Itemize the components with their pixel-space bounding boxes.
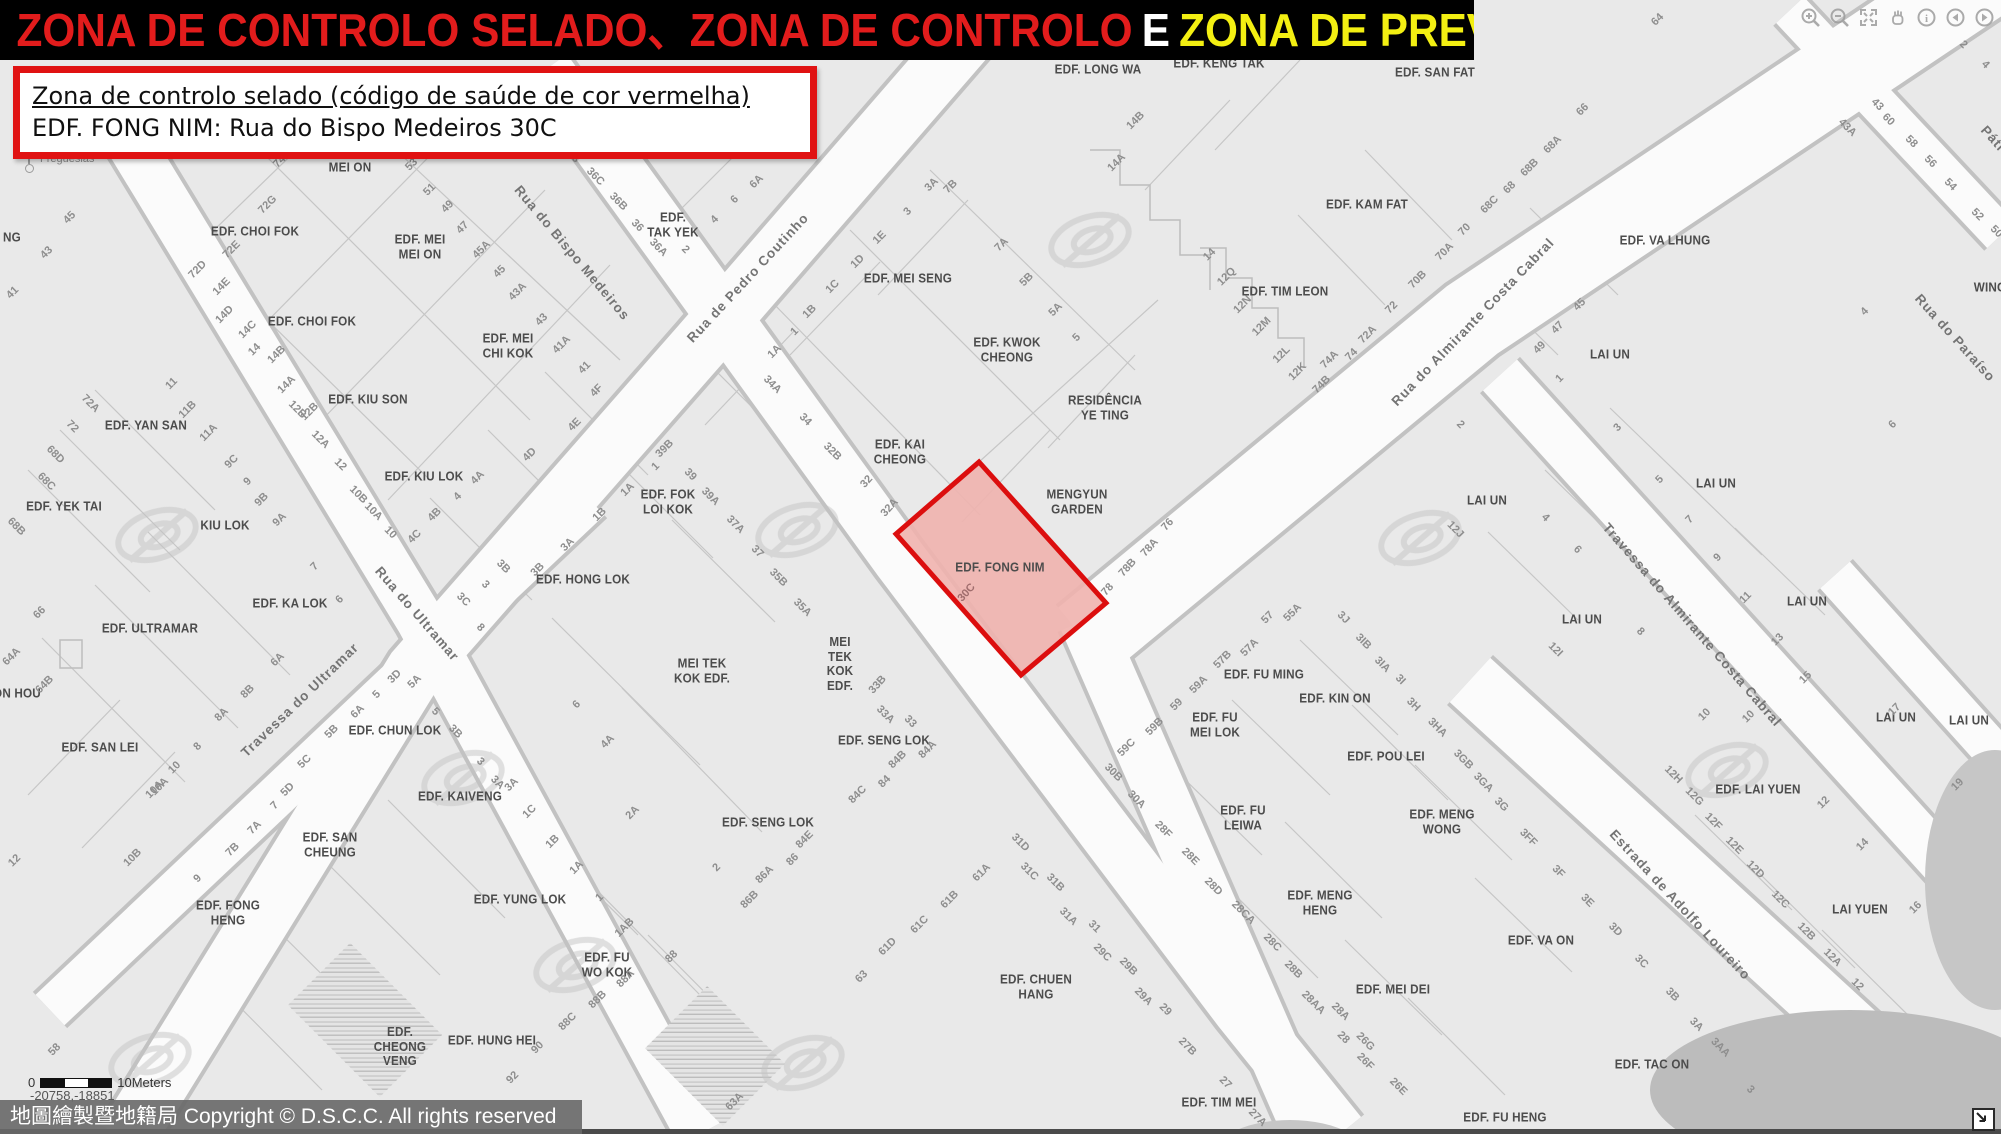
lot-number: 14 xyxy=(1202,247,1218,263)
street-label: Travessa do Almirante Costa Cabral xyxy=(1600,521,1784,730)
lot-number: 6 xyxy=(334,594,346,606)
lot-number: 52 xyxy=(1969,207,1985,223)
lot-number: 6 xyxy=(1887,419,1899,431)
lot-number: 28F xyxy=(1152,819,1173,840)
lot-number: 64A xyxy=(1,646,23,668)
lot-number: 78B xyxy=(1117,557,1139,579)
lot-number: 9 xyxy=(242,476,254,488)
lot-number: 1 xyxy=(789,326,801,338)
lot-number: 36C xyxy=(584,166,606,188)
lot-number: 35B xyxy=(767,567,789,589)
building-label: EDF. YEK TAI xyxy=(26,500,102,515)
lot-number: 74B xyxy=(1311,374,1333,396)
lot-number: 12 xyxy=(1816,795,1832,811)
lot-number: 55A xyxy=(1282,602,1304,624)
lot-number: 49 xyxy=(440,199,456,215)
lot-number: 33B xyxy=(867,674,889,696)
lot-number: 3B xyxy=(446,723,464,741)
lot-number: 26F xyxy=(1354,1051,1375,1072)
lot-number: 1C xyxy=(824,278,842,296)
scale-end-label: 10Meters xyxy=(117,1076,171,1089)
zoom-out-icon[interactable] xyxy=(1829,7,1850,28)
copyright-bar: 地圖繪製暨地籍局 Copyright © D.S.C.C. All rights… xyxy=(0,1100,582,1134)
previous-extent-icon[interactable] xyxy=(1945,7,1966,28)
building-label: EDF. KIU SON xyxy=(328,393,408,408)
lot-number: 47 xyxy=(1550,320,1566,336)
lot-number: 5B xyxy=(1018,271,1036,289)
lot-number: 7A xyxy=(993,236,1011,254)
lot-number: 6 xyxy=(571,699,583,711)
lot-number: 32 xyxy=(859,474,875,490)
lot-number: 12J xyxy=(1445,520,1466,541)
building-label: LAI UN xyxy=(1590,348,1630,363)
lot-number: 12I xyxy=(1546,641,1565,660)
lot-number: 28A xyxy=(1329,1001,1351,1023)
lot-number: 1B xyxy=(544,833,562,851)
lot-number: 6A xyxy=(269,651,287,669)
lot-number: 12 xyxy=(1849,977,1865,993)
building-label: RESIDÊNCIA YE TING xyxy=(1068,393,1142,422)
lot-number: 39A xyxy=(699,486,721,508)
lot-number: 28AA xyxy=(1299,989,1327,1017)
lot-number: 57A xyxy=(1239,637,1261,659)
building-label: LAI UN xyxy=(1696,477,1736,492)
lot-number: 5C xyxy=(296,753,314,771)
building-label: NG xyxy=(3,231,21,246)
next-extent-icon[interactable] xyxy=(1974,7,1995,28)
lot-number: 2A xyxy=(624,804,642,822)
building-label: EDF. SAN LEI xyxy=(62,741,139,756)
lot-number: 3A xyxy=(923,176,941,194)
lot-number: 4 xyxy=(1539,512,1551,524)
lot-number: 14B xyxy=(1125,110,1147,132)
lot-number: 12G xyxy=(1683,786,1705,808)
sealed-zone-info-box: Zona de controlo selado (código de saúde… xyxy=(13,66,817,159)
building-label: LAI UN xyxy=(1467,494,1507,509)
lot-number: 14E xyxy=(211,276,233,298)
lot-number: 3D xyxy=(1606,921,1624,939)
lot-number: 60 xyxy=(1880,112,1896,128)
lot-number: 14A xyxy=(1106,152,1128,174)
lot-number: 41 xyxy=(577,360,593,376)
street-label: Rua do Paraíso xyxy=(1912,292,1997,384)
lot-number: 10 xyxy=(382,525,398,541)
building-label: EDF. SAN CHEUNG xyxy=(303,830,358,859)
lot-number: 31 xyxy=(1086,919,1102,935)
lot-number: 29B xyxy=(1117,956,1139,978)
building-label: EDF. CHUN LOK xyxy=(349,724,442,739)
lot-number: 86B xyxy=(739,889,761,911)
lot-number: 41 xyxy=(5,285,21,301)
lot-number: 5 xyxy=(429,706,441,718)
lot-number: 10B xyxy=(122,847,144,869)
lot-number: 4F xyxy=(589,383,606,400)
lot-number: 28D xyxy=(1202,876,1224,898)
lot-number: 12C xyxy=(1769,889,1791,911)
zoom-in-icon[interactable] xyxy=(1800,7,1821,28)
lot-number: 12H xyxy=(1662,764,1684,786)
lot-number: 1D xyxy=(849,253,867,271)
lot-number: 4C xyxy=(406,528,424,546)
lot-number: 88B xyxy=(587,989,609,1011)
building-label: EDF. FU MING xyxy=(1224,668,1304,683)
lot-number: 3IA xyxy=(1372,655,1392,675)
lot-number: 15 xyxy=(1798,670,1814,686)
lot-number: 27 xyxy=(1217,1075,1233,1091)
lot-number: 5 xyxy=(371,689,383,701)
lot-number: 4 xyxy=(1979,59,1991,71)
lot-number: 32B xyxy=(821,441,843,463)
lot-number: 12K xyxy=(1287,361,1309,383)
building-label: EDF. YAN SAN xyxy=(105,419,187,434)
lot-number: 33 xyxy=(902,714,918,730)
lot-number: 43 xyxy=(1869,97,1885,113)
lot-number: 68 xyxy=(1502,180,1518,196)
lot-number: 27B xyxy=(1176,1036,1198,1058)
lot-number: 68C xyxy=(1479,194,1501,216)
info-box-address: EDF. FONG NIM: Rua do Bispo Medeiros 30C xyxy=(32,112,798,144)
building-label: EDF. CHOI FOK xyxy=(211,225,299,240)
lot-number: 1A xyxy=(568,859,586,877)
sealed-building-lot-number: 30C xyxy=(956,582,978,604)
lot-number: 72A xyxy=(1357,324,1379,346)
lot-number: 1C xyxy=(521,803,539,821)
lot-number: 63 xyxy=(854,969,870,985)
lot-number: 1E xyxy=(871,229,888,246)
building-label: EDF. VA ON xyxy=(1508,934,1574,949)
lot-number: 12D xyxy=(1744,859,1766,881)
lot-number: 76 xyxy=(1160,517,1176,533)
lot-number: 3AA xyxy=(1708,1036,1731,1059)
arrow-se-icon xyxy=(1974,1110,1989,1125)
building-label: EDF. KIU LOK xyxy=(385,470,464,485)
lot-number: 8 xyxy=(192,741,204,753)
lot-number: 3 xyxy=(479,579,491,591)
map-viewer: EDF. MEI MEI ONEDF. CHOI FOKEDF. MEI MEI… xyxy=(0,0,2001,1134)
lot-number: 12E xyxy=(1723,835,1745,857)
lot-number: 3D xyxy=(386,668,404,686)
lot-number: 5A xyxy=(1047,301,1065,319)
lot-number: 72E xyxy=(221,239,243,261)
banner-connector-text: E xyxy=(1133,4,1180,56)
lot-number: 8 xyxy=(1634,626,1646,638)
building-label: LAI UN xyxy=(1562,613,1602,628)
lot-number: 74A xyxy=(1319,349,1341,371)
lot-number: 12B xyxy=(1795,921,1817,943)
lot-number: 74 xyxy=(1344,347,1360,363)
lot-number: 3E xyxy=(1578,892,1595,909)
lot-number: 4 xyxy=(1859,306,1871,318)
lot-number: 72 xyxy=(64,419,80,435)
lot-number: 64 xyxy=(1650,12,1666,28)
lot-number: 36B xyxy=(607,191,629,213)
lot-number: 12L xyxy=(1271,344,1292,365)
building-label: EDF. KA LOK xyxy=(252,597,327,612)
lot-number: 86A xyxy=(754,864,776,886)
lot-number: 30B xyxy=(1102,762,1124,784)
sealed-building-label: EDF. FONG NIM xyxy=(955,561,1044,576)
lot-number: 6 xyxy=(729,194,741,206)
lot-number: 3A xyxy=(1687,1016,1705,1034)
lot-number: 36A xyxy=(647,237,669,259)
building-label: EDF. YUNG LOK xyxy=(474,893,566,908)
building-label: EDF. FU HENG xyxy=(1463,1111,1546,1126)
lot-number: 31B xyxy=(1044,872,1066,894)
building-label: EDF. ULTRAMAR xyxy=(102,622,198,637)
pan-hand-icon[interactable] xyxy=(1887,7,1908,28)
lot-number: 29C xyxy=(1091,942,1113,964)
lot-number: 10 xyxy=(167,760,183,776)
lot-number: 53 xyxy=(404,157,420,173)
lot-number: 54 xyxy=(1942,177,1958,193)
lot-number: 59 xyxy=(1169,697,1185,713)
lot-number: 3I xyxy=(1393,673,1407,687)
map-toolbar: i xyxy=(1800,7,1995,28)
lot-number: 1AB xyxy=(613,916,636,939)
building-label: MENGYUN GARDEN xyxy=(1046,487,1107,516)
lot-number: 50 xyxy=(1988,224,2001,240)
lot-number: 39 xyxy=(682,467,698,483)
lot-number: 3A xyxy=(503,776,521,794)
lot-number: 12A xyxy=(309,429,331,451)
building-label: KIU LOK xyxy=(200,519,249,534)
lot-number: 1 xyxy=(650,461,662,473)
lot-number: 1B xyxy=(591,506,609,524)
lot-number: 8B xyxy=(239,683,257,701)
lot-number: 45A xyxy=(471,239,493,261)
lot-number: 7B xyxy=(224,841,242,859)
lot-number: 68D xyxy=(44,444,66,466)
lot-number: 33A xyxy=(874,704,896,726)
building-label: EDF. CHOI FOK xyxy=(268,315,356,330)
identify-info-icon[interactable]: i xyxy=(1916,7,1937,28)
lot-number: 3 xyxy=(1744,1084,1756,1096)
building-label: EDF. HONG LOK xyxy=(536,573,630,588)
building-label: EDF. KAM FAT xyxy=(1326,198,1408,213)
lot-number: 8 xyxy=(474,622,486,634)
building-label: EDF. MENG WONG xyxy=(1409,807,1474,836)
lot-number: 3 xyxy=(1612,422,1624,434)
lot-number: 1 xyxy=(594,892,606,904)
building-label: EDF. POU LEI xyxy=(1347,750,1425,765)
lot-number: 3GB xyxy=(1451,748,1475,772)
lot-number: 88 xyxy=(664,949,680,965)
lot-number: 8A xyxy=(213,706,231,724)
building-label: EDF. KAI CHEONG xyxy=(874,437,926,466)
lot-number: 3H xyxy=(1404,696,1422,714)
lot-number: 3 xyxy=(902,206,914,218)
lot-number: 3B xyxy=(1663,986,1681,1004)
building-label: EDF. VA LHUNG xyxy=(1620,234,1711,249)
lot-number: 3G xyxy=(1492,796,1510,814)
lot-number: 63A xyxy=(724,1091,746,1113)
lot-number: 68A xyxy=(1542,134,1564,156)
lot-number: 27A xyxy=(1246,1107,1268,1129)
lot-number: 84 xyxy=(877,774,893,790)
lot-number: 88C xyxy=(557,1011,579,1033)
lot-number: 58 xyxy=(47,1042,63,1058)
lot-number: 31A xyxy=(1057,906,1079,928)
svg-text:i: i xyxy=(1925,13,1928,25)
lot-number: 84B xyxy=(887,749,909,771)
building-label: LAI YUEN xyxy=(1832,903,1888,918)
lot-number: 4A xyxy=(469,469,487,487)
lot-number: 49 xyxy=(1532,340,1548,356)
lot-number: 59B xyxy=(1144,716,1166,738)
lot-number: 3GA xyxy=(1471,771,1495,795)
lot-number: 9 xyxy=(192,873,204,885)
lot-number: 1 xyxy=(1554,373,1566,385)
lot-number: 12 xyxy=(7,853,23,869)
lot-number: 59C xyxy=(1116,737,1138,759)
building-label: EDF. HUNG HEI xyxy=(448,1034,536,1049)
lot-number: 14A xyxy=(276,374,298,396)
lot-number: 14 xyxy=(1855,837,1871,853)
lot-number: 72A xyxy=(79,393,101,415)
lot-number: 68B xyxy=(1519,157,1541,179)
lot-number: 10B xyxy=(347,484,369,506)
lot-number: 6A xyxy=(748,173,766,191)
building-label: EDF. KAIVENG xyxy=(418,790,502,805)
lot-number: 3C xyxy=(1632,953,1650,971)
lot-number: 4B xyxy=(426,506,444,524)
banner-sealed-control-text: ZONA DE CONTROLO SELADO、ZONA DE CONTROLO xyxy=(17,4,1133,56)
lot-number: 31C xyxy=(1018,861,1040,883)
lot-number: 59A xyxy=(1188,674,1210,696)
building-label: MEI TEK KOK EDF. xyxy=(827,635,854,693)
lot-number: 35A xyxy=(791,597,813,619)
building-label: EDF. LAI YUEN xyxy=(1715,783,1800,798)
lot-number: 12Q xyxy=(1216,266,1238,288)
banner-prevention-text: ZONA DE PREVENÇÃO xyxy=(1179,4,1474,56)
lot-number: 66 xyxy=(1575,102,1591,118)
lot-number: 70 xyxy=(1457,222,1473,238)
lot-number: 39B xyxy=(654,438,676,460)
lot-number: 43 xyxy=(534,312,550,328)
lot-number: 10 xyxy=(1741,709,1757,725)
full-extent-icon[interactable] xyxy=(1858,7,1879,28)
lot-number: 5 xyxy=(1071,332,1083,344)
map-labels-layer: EDF. MEI MEI ONEDF. CHOI FOKEDF. MEI MEI… xyxy=(0,0,2001,1134)
lot-number: 13 xyxy=(1770,632,1786,648)
lot-number: 12F xyxy=(1702,811,1723,832)
building-label: EDF. TAC ON xyxy=(1615,1058,1690,1073)
lot-number: 14C xyxy=(237,319,259,341)
lot-number: 11 xyxy=(1738,590,1754,606)
lot-number: 41A xyxy=(551,334,573,356)
lot-number: 7 xyxy=(269,800,281,812)
lot-number: 3C xyxy=(454,591,472,609)
lot-number: 34A xyxy=(761,374,783,396)
lot-number: 47 xyxy=(455,220,471,236)
lot-number: 14B xyxy=(266,344,288,366)
building-label: WING xyxy=(1974,281,2001,296)
scale-bar-graphic xyxy=(40,1078,112,1088)
building-label: EDF. MEI MEI ON xyxy=(395,232,446,261)
lot-number: 5B xyxy=(323,723,341,741)
lot-number: 26G xyxy=(1354,1031,1376,1053)
lot-number: 3HA xyxy=(1425,716,1448,739)
lot-number: 3 xyxy=(474,756,486,768)
lot-number: 28C xyxy=(1261,932,1283,954)
lot-number: 28 xyxy=(1335,1030,1351,1046)
lot-number: 2 xyxy=(1454,419,1466,431)
lot-number: 29 xyxy=(1157,1002,1173,1018)
lot-number: 86 xyxy=(785,852,801,868)
street-label: Travessa do Ultramar xyxy=(239,640,362,759)
lot-number: 28E xyxy=(1179,846,1201,868)
lot-number: 66 xyxy=(32,605,48,621)
lot-number: 7 xyxy=(1684,514,1696,526)
lot-number: 56 xyxy=(1922,154,1938,170)
lot-number: 4E xyxy=(566,416,583,433)
building-label: EDF. SENG LOK xyxy=(838,734,930,749)
lot-number: 45 xyxy=(1572,297,1588,313)
lot-number: 29A xyxy=(1132,986,1154,1008)
lot-number: 4 xyxy=(709,214,721,226)
building-label: EDF. MEI DEI xyxy=(1356,983,1430,998)
lot-number: 14D xyxy=(214,304,236,326)
lot-number: 9C xyxy=(223,453,241,471)
lot-number: 36 xyxy=(629,218,645,234)
lot-number: 3A xyxy=(559,536,577,554)
lot-number: 3B xyxy=(494,558,512,576)
building-label: EDF. MEI CHI KOK xyxy=(483,331,534,360)
lot-number: 11A xyxy=(198,422,220,444)
lot-number: 9A xyxy=(271,511,289,529)
building-label: EDF. MENG HENG xyxy=(1287,888,1352,917)
lot-number: 3IB xyxy=(1353,632,1373,652)
overview-map-toggle[interactable] xyxy=(1972,1108,1995,1131)
lot-number: 68C xyxy=(35,471,57,493)
building-label: EDF. SAN FAT xyxy=(1395,66,1475,81)
lot-number: 78 xyxy=(1100,582,1116,598)
building-label: EDF. SENG LOK xyxy=(722,816,814,831)
lot-number: 70A xyxy=(1434,241,1456,263)
street-label: Pátio xyxy=(1978,123,2001,160)
lot-number: 34 xyxy=(797,412,813,428)
lot-number: 5 xyxy=(1654,474,1666,486)
lot-number: 4D xyxy=(521,446,539,464)
lot-number: 1A xyxy=(766,343,784,361)
lot-number: 3J xyxy=(1335,610,1351,626)
lot-number: 26E xyxy=(1387,1076,1409,1098)
lot-number: 92 xyxy=(505,1070,521,1086)
lot-number: 57 xyxy=(1260,610,1276,626)
lot-number: 58 xyxy=(1903,134,1919,150)
lot-number: 7A xyxy=(246,819,264,837)
lot-number: 43 xyxy=(39,245,55,261)
lot-number: 61C xyxy=(909,914,931,936)
lot-number: 2 xyxy=(1957,39,1969,51)
lot-number: 7 xyxy=(309,561,321,573)
building-label: EDF. MEI SENG xyxy=(864,272,952,287)
lot-number: 1A xyxy=(619,481,637,499)
lot-number: 28CA xyxy=(1229,899,1257,927)
lot-number: 45 xyxy=(492,264,508,280)
lot-number: 28B xyxy=(1282,959,1304,981)
lot-number: 61D xyxy=(877,936,899,958)
building-label: EDF. LONG WA xyxy=(1055,63,1142,78)
building-label: LAI UN xyxy=(1787,595,1827,610)
lot-number: 3F xyxy=(1550,864,1567,881)
building-label: EDF. FU LEIWA xyxy=(1220,803,1265,832)
lot-number: 84E xyxy=(794,829,816,851)
building-label: EDF. CHEONG VENG xyxy=(374,1025,426,1069)
lot-number: 72 xyxy=(1384,300,1400,316)
building-label: EDF. TIM MEI xyxy=(1182,1096,1257,1111)
info-box-title: Zona de controlo selado (código de saúde… xyxy=(32,80,798,112)
